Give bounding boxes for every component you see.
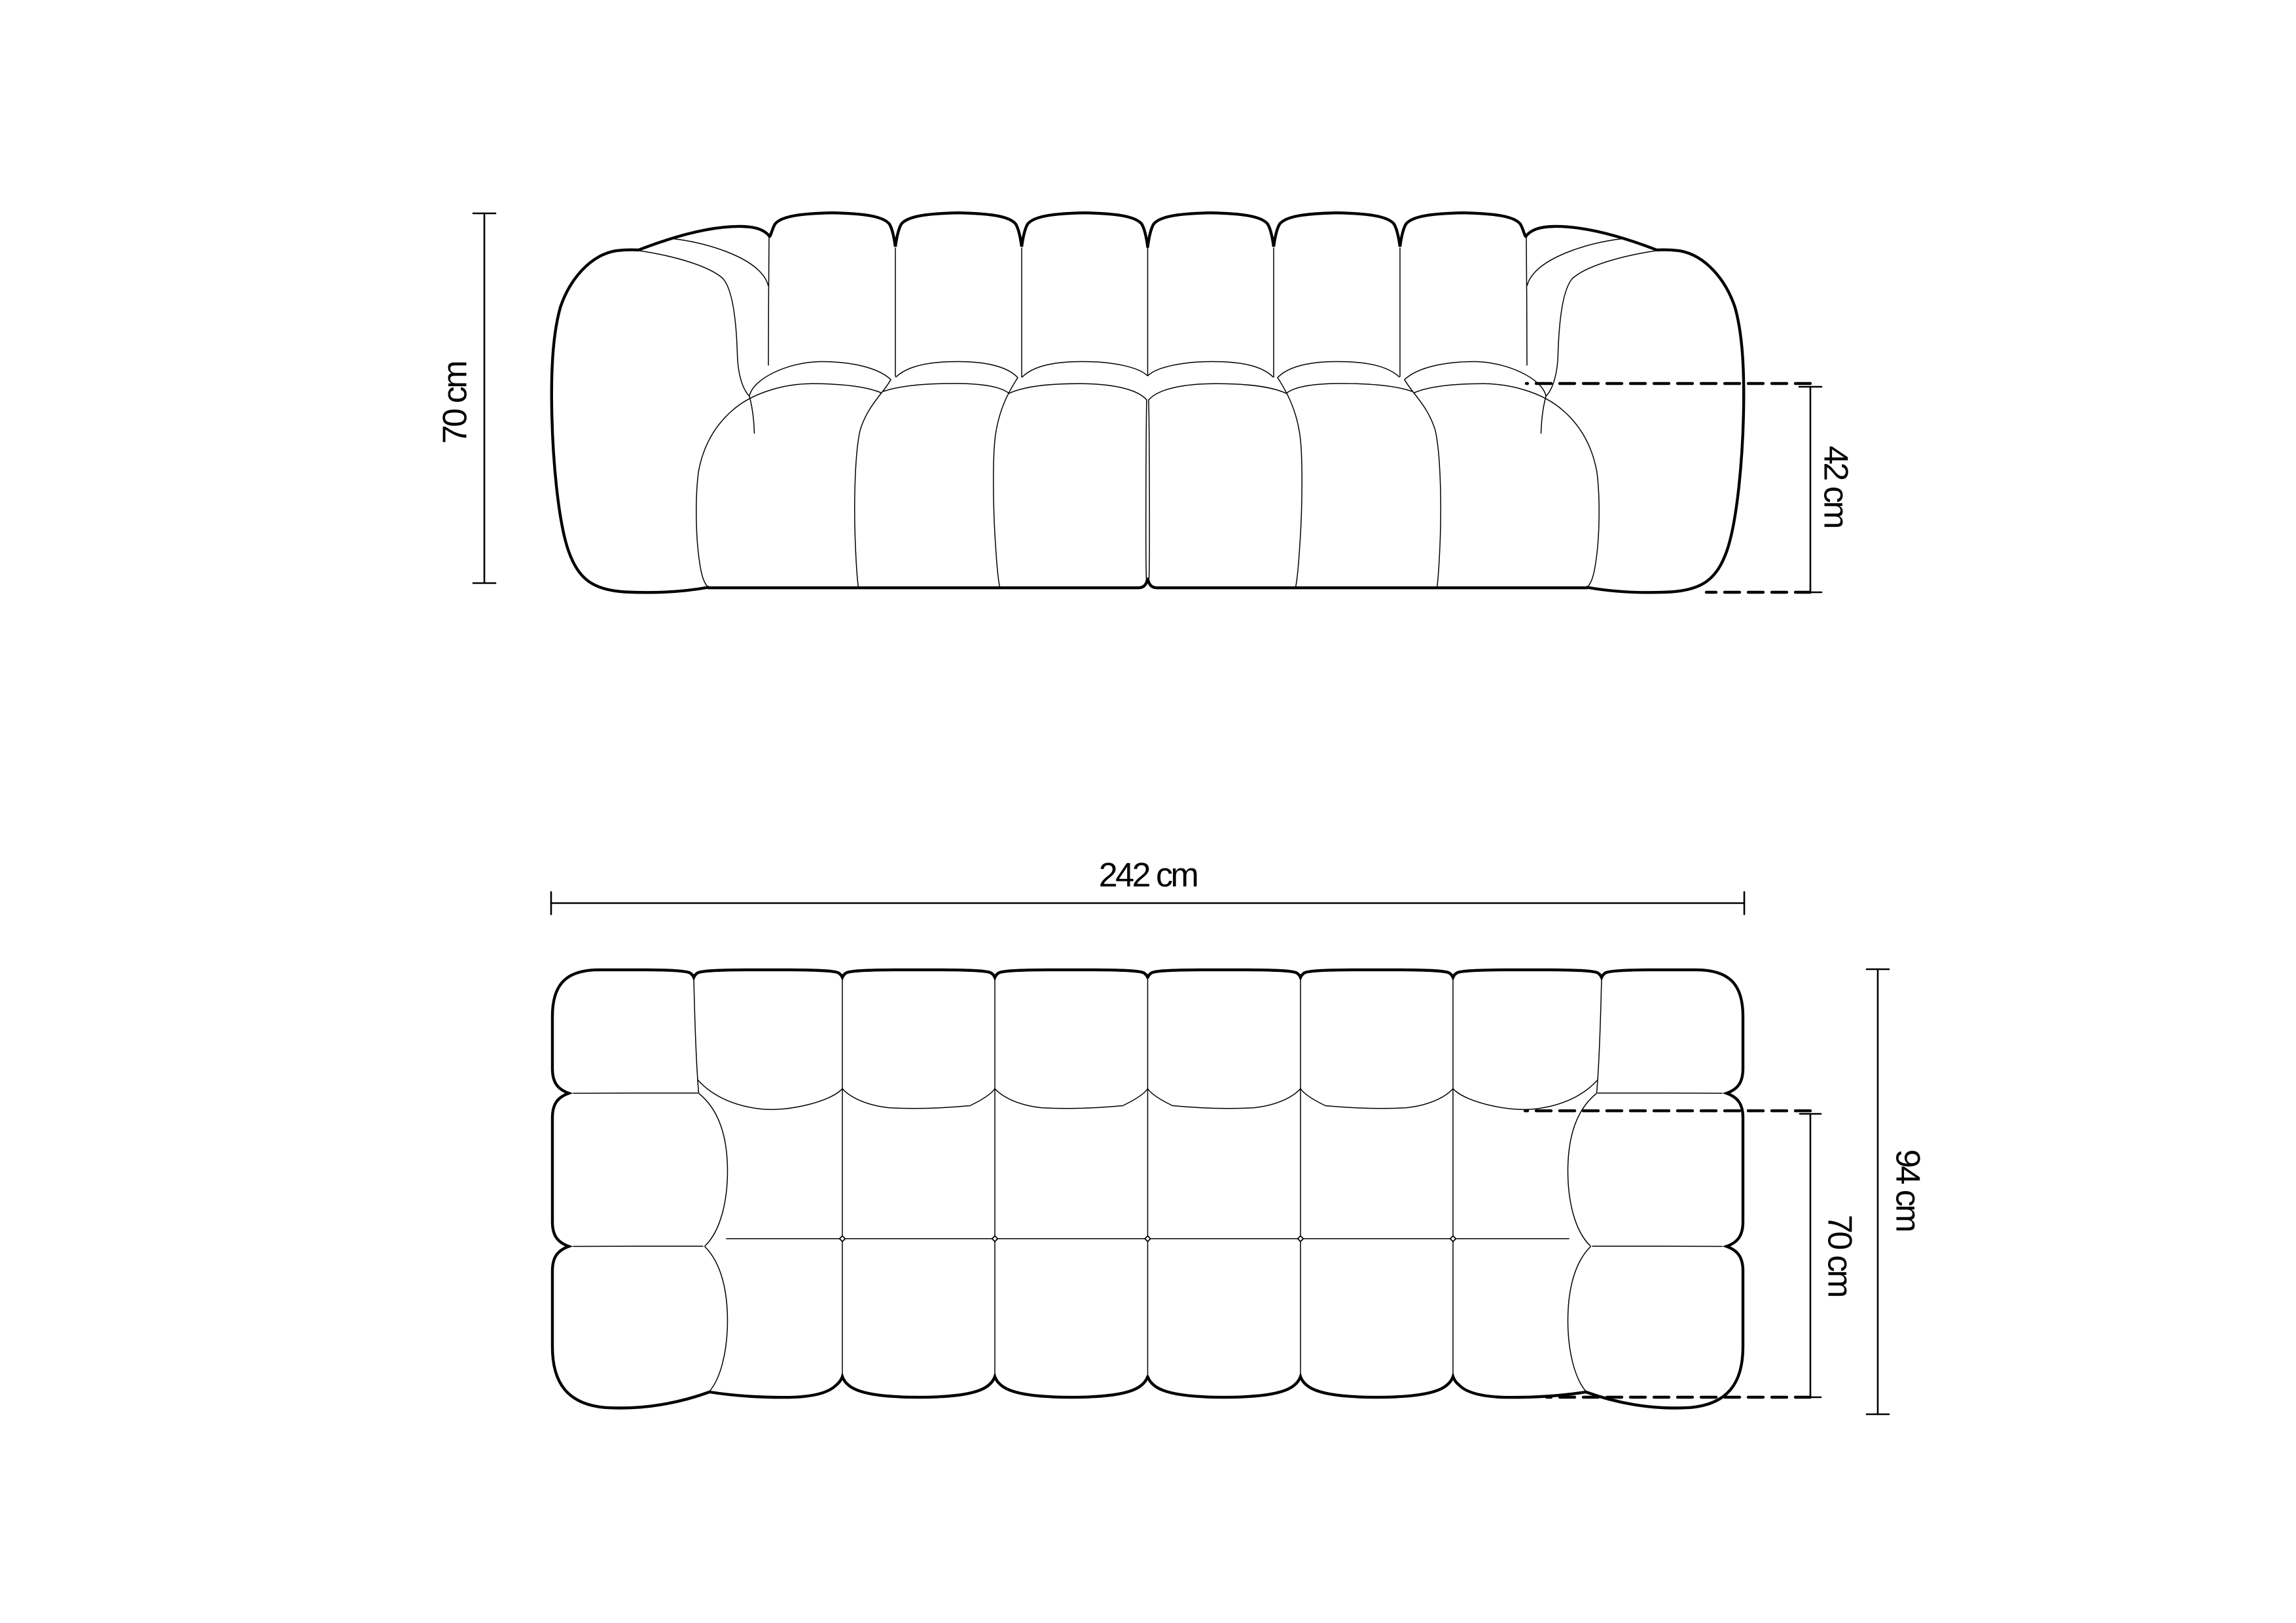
svg-text:94 cm: 94 cm xyxy=(1888,1149,1926,1230)
svg-text:42 cm: 42 cm xyxy=(1816,446,1854,527)
svg-text:70 cm: 70 cm xyxy=(1820,1215,1858,1296)
svg-text:70 cm: 70 cm xyxy=(437,363,475,444)
svg-text:242 cm: 242 cm xyxy=(1099,857,1197,895)
